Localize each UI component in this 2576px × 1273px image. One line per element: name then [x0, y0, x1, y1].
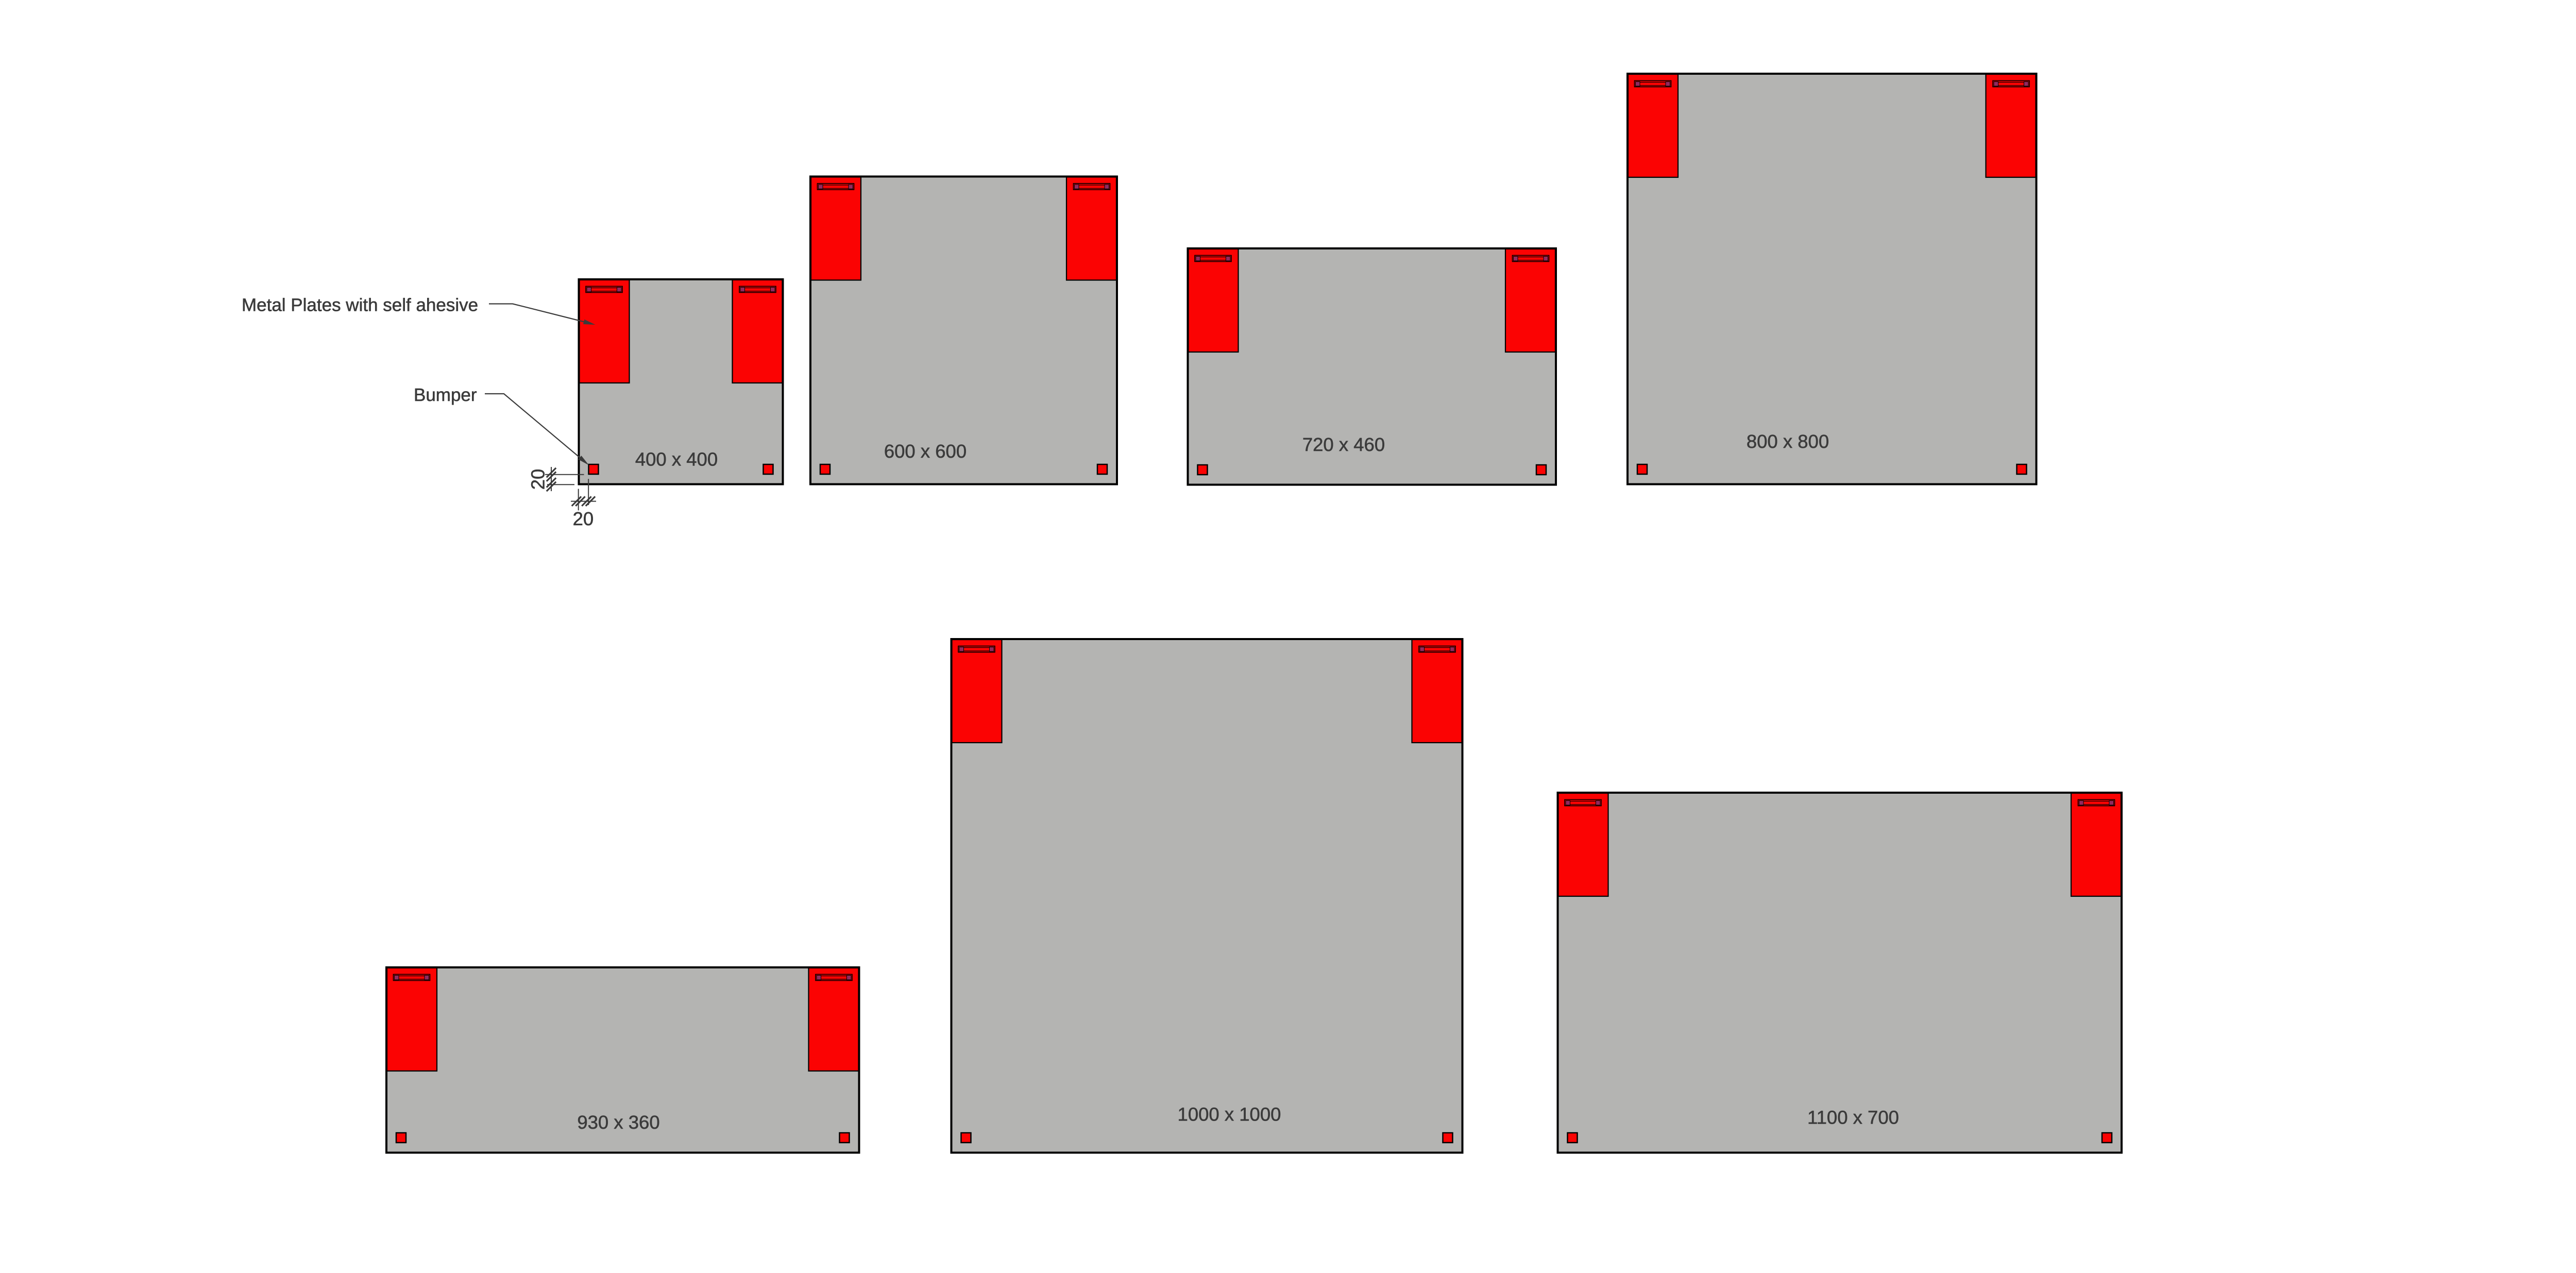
- svg-text:930 x 360: 930 x 360: [577, 1112, 659, 1133]
- svg-text:720 x 460: 720 x 460: [1302, 434, 1385, 455]
- svg-text:800 x 800: 800 x 800: [1747, 431, 1829, 452]
- svg-text:20: 20: [573, 508, 594, 529]
- svg-text:400 x 400: 400 x 400: [635, 449, 718, 470]
- svg-text:600 x 600: 600 x 600: [884, 441, 967, 462]
- svg-text:20: 20: [528, 469, 549, 490]
- svg-text:Metal Plates with self ahesive: Metal Plates with self ahesive: [242, 295, 478, 315]
- svg-text:1000 x 1000: 1000 x 1000: [1178, 1104, 1281, 1125]
- svg-text:Bumper: Bumper: [414, 385, 477, 405]
- svg-text:1100 x 700: 1100 x 700: [1807, 1107, 1899, 1128]
